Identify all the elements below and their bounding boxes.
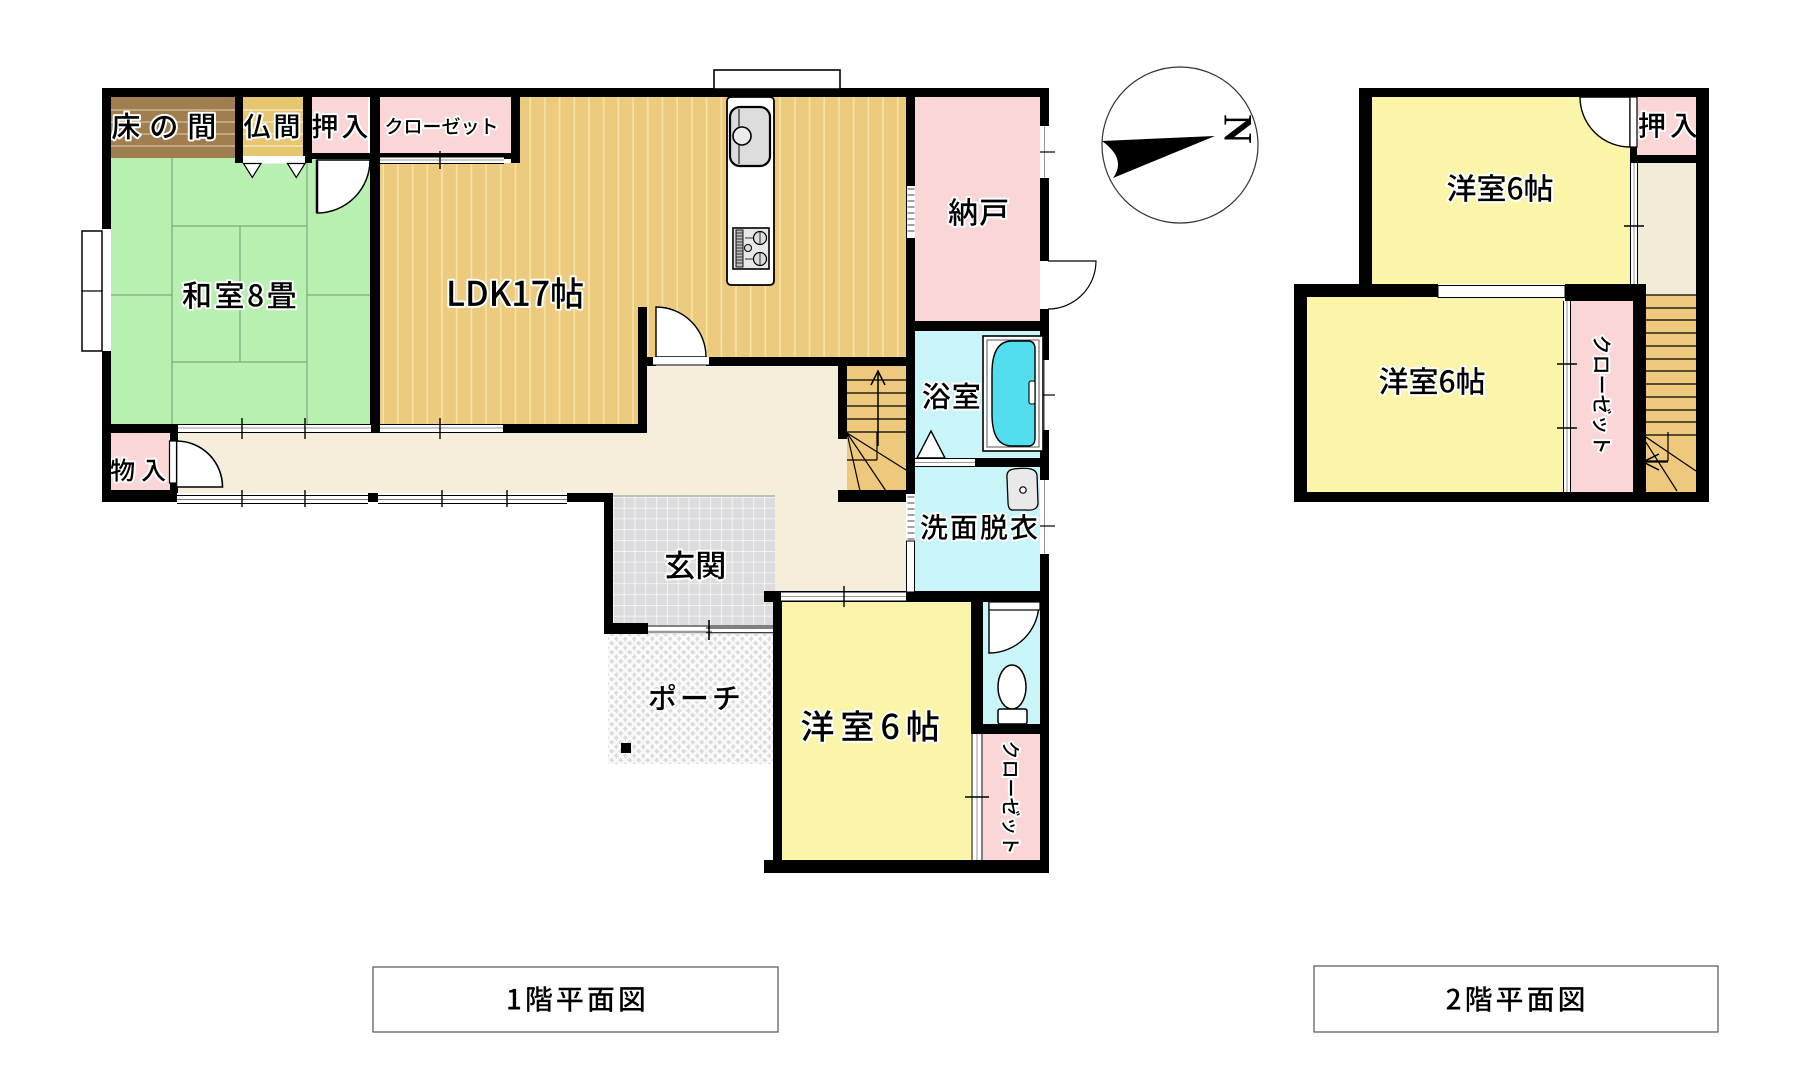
svg-text:N: N [1216, 115, 1261, 144]
